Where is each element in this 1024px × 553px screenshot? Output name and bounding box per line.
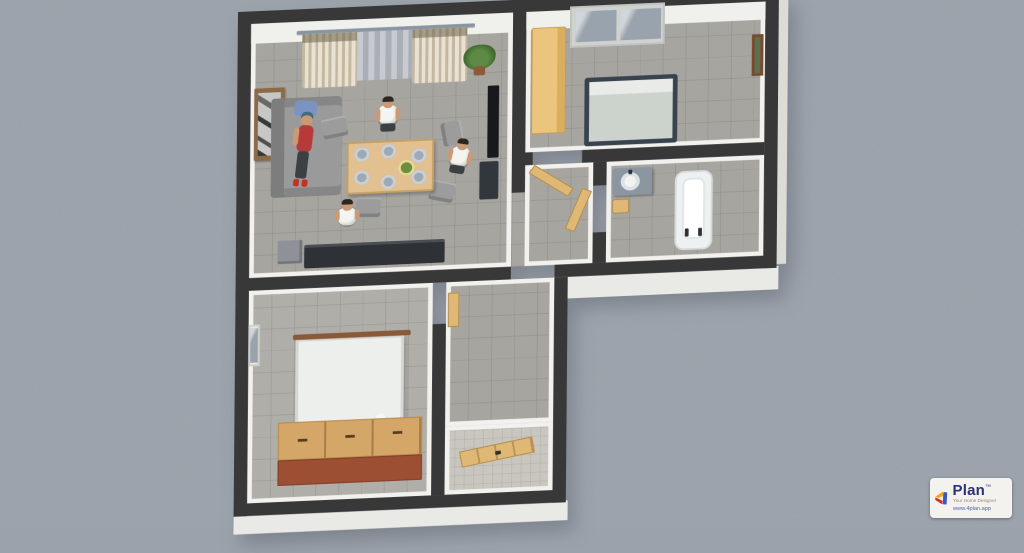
wall-bedroom-south-a bbox=[512, 152, 533, 166]
chest-top bbox=[278, 417, 423, 461]
window-sheer-panel bbox=[357, 30, 414, 81]
wall-east-lower bbox=[552, 277, 567, 503]
bed-duvet bbox=[589, 79, 673, 142]
bathroom-stool bbox=[612, 199, 629, 214]
corridor-floor bbox=[445, 277, 554, 426]
bathroom-vanity bbox=[612, 167, 652, 196]
vanity-tap bbox=[628, 170, 632, 175]
bathtub-tap-1 bbox=[685, 228, 689, 236]
man-seated-south bbox=[335, 198, 360, 230]
bedroom2-side-window bbox=[248, 325, 260, 367]
wardrobe bbox=[531, 27, 566, 135]
plate bbox=[354, 170, 369, 185]
brand-name: Plan™ bbox=[953, 483, 1008, 499]
floorplan-3d-scene[interactable] bbox=[233, 0, 807, 553]
plan-logo-icon bbox=[934, 486, 950, 510]
dining-table bbox=[346, 139, 434, 195]
man-standing-north bbox=[375, 95, 400, 136]
woman-legs bbox=[295, 151, 310, 179]
corridor-wall-shelf bbox=[448, 292, 460, 327]
bathtub bbox=[674, 170, 713, 251]
plant-pot bbox=[474, 66, 485, 76]
wall-bedroom2-corridor bbox=[431, 324, 446, 496]
trademark-symbol: ™ bbox=[985, 485, 991, 491]
wall-tv bbox=[487, 85, 499, 158]
woman-shoe-right bbox=[301, 179, 308, 187]
wall-hall-bath-b bbox=[593, 232, 607, 263]
woman-shoe-left bbox=[293, 179, 300, 187]
brand-tagline: Your Home Designer bbox=[953, 499, 996, 504]
bedroom-window bbox=[570, 2, 665, 48]
window-pane-left bbox=[575, 10, 616, 42]
wooden-chest bbox=[278, 417, 423, 486]
vanity-sink bbox=[621, 172, 640, 191]
curtain-right bbox=[412, 27, 468, 83]
bedroom-wall-picture bbox=[752, 34, 764, 76]
window-pane-right bbox=[620, 8, 661, 40]
entry-door-handle bbox=[495, 450, 501, 455]
plate bbox=[354, 147, 369, 162]
brand-url[interactable]: www.4plan.app bbox=[953, 506, 997, 512]
plan-watermark-badge[interactable]: Plan™ Your Home Designer www.4plan.app bbox=[930, 478, 1012, 518]
potted-plant bbox=[463, 44, 497, 78]
double-bed bbox=[584, 74, 678, 147]
plate bbox=[381, 144, 396, 159]
tv-cabinet bbox=[479, 161, 498, 200]
bathtub-tap-2 bbox=[698, 228, 702, 236]
hallway-floor bbox=[524, 162, 593, 266]
storage-box bbox=[278, 240, 303, 265]
plate bbox=[411, 148, 426, 163]
side-window-pane bbox=[250, 328, 258, 363]
hallway-opening-floor bbox=[511, 192, 525, 266]
plate bbox=[381, 174, 396, 189]
wall-hall-bath-a bbox=[593, 162, 606, 186]
wall-east-main bbox=[763, 0, 779, 268]
curtain-left bbox=[302, 32, 358, 88]
